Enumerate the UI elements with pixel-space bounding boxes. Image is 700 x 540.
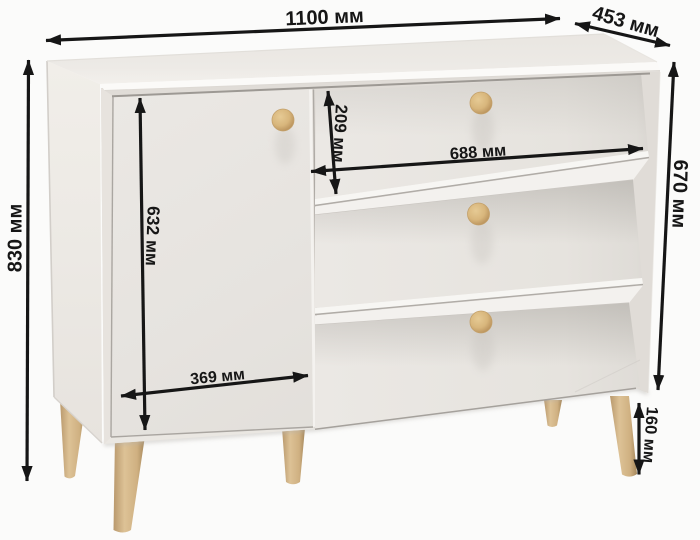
svg-text:632 мм: 632 мм [142, 206, 164, 267]
svg-text:830 мм: 830 мм [5, 204, 27, 273]
svg-text:209 мм: 209 мм [329, 104, 351, 163]
svg-text:1100 мм: 1100 мм [285, 5, 364, 30]
svg-text:670 мм: 670 мм [667, 159, 691, 228]
